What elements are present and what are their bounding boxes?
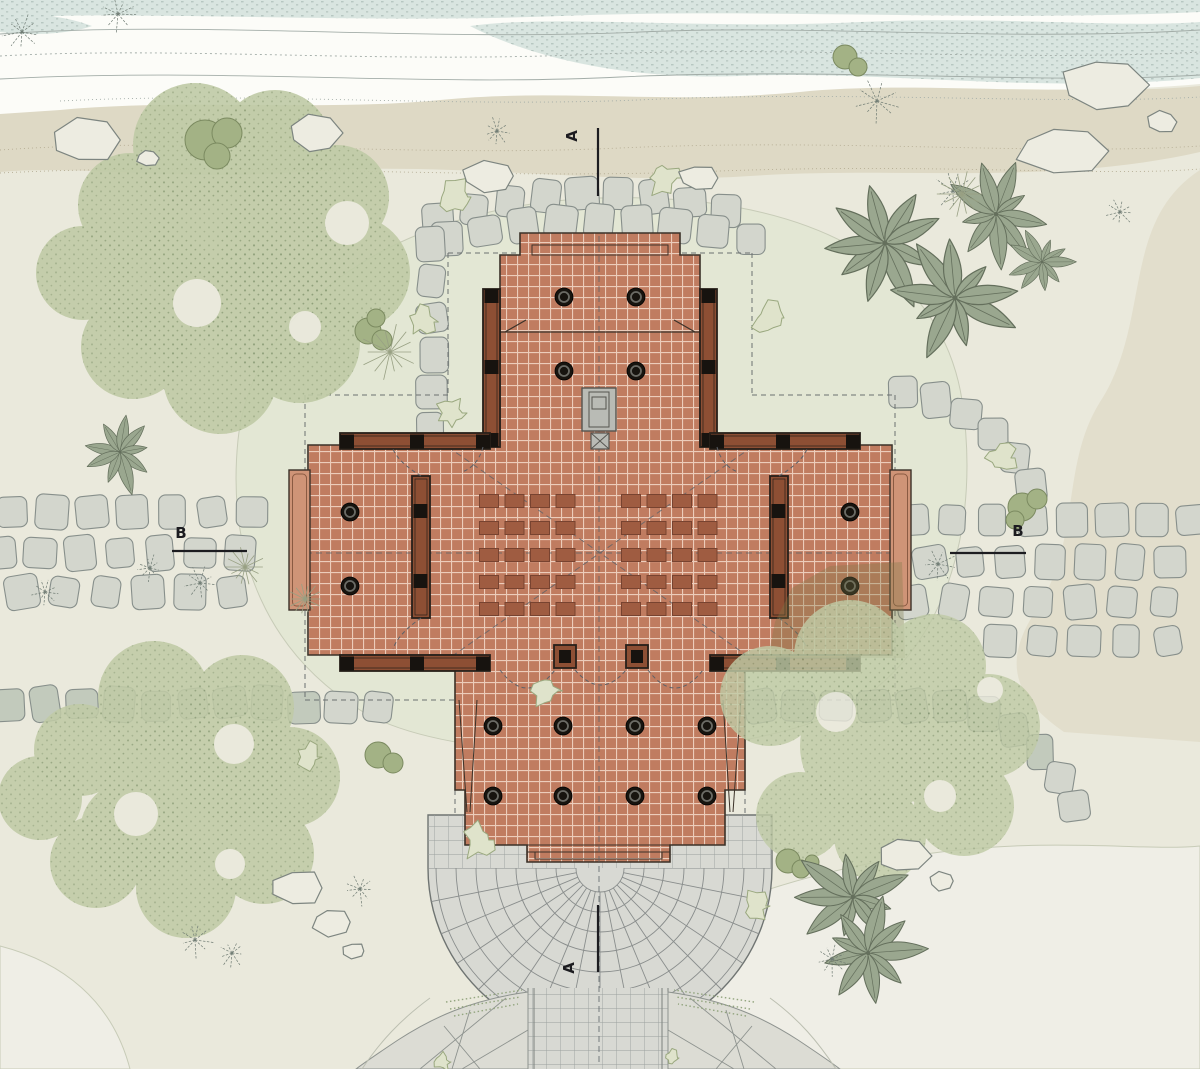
prayer-mat (556, 522, 575, 535)
wall-post (485, 289, 499, 303)
column (484, 717, 502, 735)
column (484, 787, 502, 805)
stepping-stone (420, 337, 449, 373)
stepping-stone (223, 534, 256, 571)
prayer-mat (556, 495, 575, 508)
prayer-mat (647, 522, 666, 535)
prayer-mat (673, 603, 692, 616)
stepping-stone (888, 376, 917, 408)
prayer-mat (698, 522, 717, 535)
canopy-gap (924, 780, 956, 812)
prayer-mat (698, 576, 717, 589)
canopy-gap (816, 692, 856, 732)
canopy-gap (977, 677, 1003, 703)
stepping-stone (1074, 544, 1106, 581)
stepping-stone (63, 534, 97, 573)
wall-post (414, 574, 428, 588)
canopy-gap (215, 849, 245, 879)
canopy-gap (325, 201, 369, 245)
prayer-mat (505, 603, 524, 616)
prayer-mat (556, 603, 575, 616)
canopy-gap (289, 311, 321, 343)
stepping-stone (467, 214, 504, 248)
stepping-stone (920, 381, 953, 419)
wall-post (710, 435, 724, 449)
prayer-mat (480, 522, 499, 535)
entry-pillar-core (559, 650, 571, 663)
wall-post (772, 574, 786, 588)
column (698, 787, 716, 805)
stepping-stone (1136, 503, 1169, 537)
stepping-stone (196, 495, 228, 529)
section-label-b-left: B (175, 524, 186, 542)
site-plan-drawing: A A B B (0, 0, 1200, 1069)
column (698, 717, 716, 735)
stepping-stone (1043, 760, 1076, 795)
prayer-mat (622, 549, 641, 562)
wall-post (476, 435, 490, 449)
wall-post (485, 360, 499, 374)
prayer-mat (647, 576, 666, 589)
column (626, 717, 644, 735)
entry-pillar-core (631, 650, 643, 663)
stepping-stone (362, 690, 394, 723)
stepping-stone (1113, 625, 1140, 658)
stepping-stone (994, 545, 1026, 579)
prayer-mat (647, 549, 666, 562)
canopy-gap (214, 724, 254, 764)
prayer-mat (505, 576, 524, 589)
stepping-stone (115, 494, 149, 530)
wall-post (476, 657, 490, 671)
stepping-stone (1153, 624, 1184, 657)
stepping-stone (1057, 789, 1092, 823)
prayer-mat (622, 522, 641, 535)
column (555, 362, 573, 380)
stepping-stone (737, 224, 765, 254)
prayer-mat (673, 522, 692, 535)
prayer-mat (673, 549, 692, 562)
prayer-mat (480, 576, 499, 589)
prayer-mat (505, 522, 524, 535)
stepping-stone (324, 691, 359, 724)
stepping-stone (1115, 543, 1146, 581)
column (555, 288, 573, 306)
stepping-stone (1106, 585, 1138, 618)
stepping-stone (1175, 504, 1200, 536)
stepping-stone (1150, 586, 1179, 617)
stepping-stone (184, 538, 217, 569)
prayer-mat (531, 495, 550, 508)
column (554, 787, 572, 805)
stepping-stone (1023, 586, 1053, 618)
stepping-stone (1056, 503, 1088, 538)
stepping-stone (34, 493, 69, 530)
prayer-mat (622, 495, 641, 508)
stepping-stone (0, 689, 25, 723)
wall-post (410, 657, 424, 671)
stepping-stone (90, 575, 122, 609)
column (341, 503, 359, 521)
stepping-stone (74, 494, 110, 530)
column (341, 577, 359, 595)
prayer-mat (556, 576, 575, 589)
canopy-gap (114, 792, 158, 836)
stepping-stone (978, 586, 1014, 618)
stepping-stone (22, 537, 57, 569)
wall-post (846, 435, 860, 449)
prayer-mat (622, 576, 641, 589)
wall-post (410, 435, 424, 449)
prayer-mat (531, 549, 550, 562)
prayer-mat (480, 603, 499, 616)
stepping-stone (1095, 503, 1130, 538)
canopy-gap (173, 279, 221, 327)
stepping-stone (1026, 625, 1058, 658)
stepping-stone (3, 572, 42, 611)
prayer-mat (505, 549, 524, 562)
wall-post (414, 504, 428, 518)
stepping-stone (696, 214, 730, 249)
stepping-stone (1154, 546, 1187, 578)
entry-path-grid (528, 988, 668, 1069)
stepping-stone (131, 574, 166, 610)
prayer-mat (698, 549, 717, 562)
stepping-stone (0, 496, 28, 528)
stepping-stone (47, 575, 80, 609)
stepping-stone (983, 624, 1017, 658)
wall-post (710, 657, 724, 671)
column (626, 787, 644, 805)
prayer-mat (622, 603, 641, 616)
column (627, 288, 645, 306)
wall-post (340, 435, 354, 449)
wall-post (702, 289, 716, 303)
column (627, 362, 645, 380)
prayer-mat (531, 522, 550, 535)
stepping-stone (1034, 544, 1065, 580)
stepping-stone (979, 504, 1006, 536)
column (554, 717, 572, 735)
stepping-stone (938, 504, 966, 535)
prayer-mat (480, 495, 499, 508)
wall-post (776, 435, 790, 449)
stepping-stone (236, 497, 268, 528)
prayer-mat (698, 603, 717, 616)
prayer-mat (531, 576, 550, 589)
stepping-stone (1063, 583, 1098, 620)
stepping-stone (216, 575, 248, 610)
stepping-stone (416, 263, 446, 298)
prayer-mat (647, 603, 666, 616)
section-label-a-bottom: A (560, 962, 578, 974)
wall-post (772, 504, 786, 518)
stepping-stone (415, 226, 446, 262)
prayer-mat (647, 495, 666, 508)
wall-post (702, 360, 716, 374)
prayer-mat (556, 549, 575, 562)
prayer-mat (698, 495, 717, 508)
prayer-mat (673, 495, 692, 508)
stepping-stone (955, 546, 985, 578)
column (841, 503, 859, 521)
prayer-mat (673, 576, 692, 589)
section-label-a-top: A (563, 130, 581, 142)
prayer-mat (505, 495, 524, 508)
stepping-stone (911, 543, 950, 580)
prayer-mat (480, 549, 499, 562)
stepping-stone (105, 537, 135, 569)
prayer-mat (531, 603, 550, 616)
site-plan: A A B B (0, 0, 1200, 1069)
wall-post (340, 657, 354, 671)
stepping-stone (1067, 625, 1102, 658)
stepping-stone (0, 536, 17, 571)
section-label-b-right: B (1012, 522, 1023, 540)
